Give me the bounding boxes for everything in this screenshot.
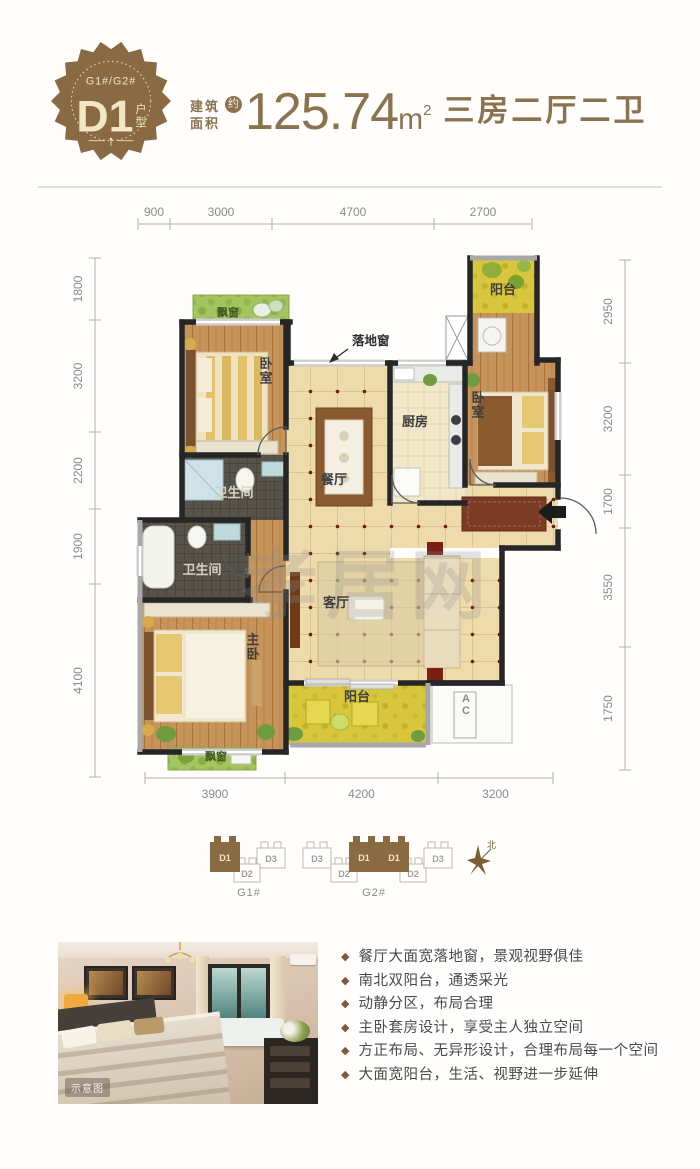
dimension-label: 1700 xyxy=(601,488,615,515)
site-cluster-G2: D3D2D2D3D1D1G2# xyxy=(303,836,452,899)
room-label-master-bedroom: 主卧 xyxy=(246,632,259,661)
floor-plan-svg: 孝居网飘窗卧室卫生间卫生间主卧飘窗餐厅厨房客厅阳台卧室阳台AC落地窗900300… xyxy=(0,195,700,930)
site-cluster-G1: D3D2D1G1# xyxy=(210,836,285,899)
site-cluster-name: G1# xyxy=(237,887,261,899)
dimension-label: 3200 xyxy=(601,405,615,432)
room-label-kitchen: 厨房 xyxy=(402,414,428,429)
room-label-bedroom-east: 卧室 xyxy=(471,390,484,419)
photo-ac-unit xyxy=(290,954,316,965)
feature-item: ◆南北双阳台，通透采光 xyxy=(341,973,693,990)
feature-text: 主卧套房设计，享受主人独立空间 xyxy=(358,1020,583,1037)
photo-picture-frame xyxy=(84,966,128,1000)
feature-list: ◆餐厅大面宽落地窗，景观视野俱佳◆南北双阳台，通透采光◆动静分区，布局合理◆主卧… xyxy=(341,949,693,1090)
feature-item: ◆主卧套房设计，享受主人独立空间 xyxy=(341,1020,693,1037)
dimension-label: 3200 xyxy=(482,787,509,801)
feature-item: ◆餐厅大面宽落地窗，景观视野俱佳 xyxy=(341,949,693,966)
feature-bullet-icon: ◆ xyxy=(341,973,349,990)
site-unit-label: D2 xyxy=(241,869,253,879)
unit-type-badge: G1#/G2# D1 户型 xyxy=(50,40,172,162)
dimension-label: 3200 xyxy=(71,362,85,389)
site-unit-label: D1 xyxy=(388,853,400,863)
dimension-label: 3900 xyxy=(202,787,229,801)
dimension-label: 4200 xyxy=(348,787,375,801)
compass-north-label: 北 xyxy=(487,840,496,850)
photo-flowers xyxy=(280,1020,310,1042)
dimension-label: 2200 xyxy=(71,457,85,484)
site-plan: D3D2D1G1#D3D2D2D3D1D1G2#北 xyxy=(210,836,496,899)
dimension-label: 2950 xyxy=(601,298,615,325)
photo-dresser xyxy=(264,1038,318,1104)
watermark-text: 孝居网 xyxy=(242,544,494,629)
dimension-label: 2700 xyxy=(470,205,497,219)
feature-text: 餐厅大面宽落地窗，景观视野俱佳 xyxy=(358,949,583,966)
feature-bullet-icon: ◆ xyxy=(341,949,349,966)
site-unit-label: D2 xyxy=(338,869,350,879)
feature-item: ◆动静分区，布局合理 xyxy=(341,996,693,1013)
compass-icon: 北 xyxy=(467,840,496,875)
area-label: 建筑 面积 xyxy=(190,98,220,132)
badge-building-range: G1#/G2# xyxy=(86,76,136,88)
site-unit-label: D3 xyxy=(311,854,323,864)
dimension-label: 1800 xyxy=(71,275,85,302)
site-unit-label: D1 xyxy=(219,853,231,863)
dimension-label: 4700 xyxy=(340,205,367,219)
dimension-label: 1900 xyxy=(71,533,85,560)
badge-unit-suffix: 户型 xyxy=(135,102,146,129)
site-unit-label: D3 xyxy=(265,854,277,864)
photo-pillow xyxy=(133,1016,165,1035)
feature-bullet-icon: ◆ xyxy=(341,1067,349,1084)
feature-item: ◆大面宽阳台，生活、视野进一步延伸 xyxy=(341,1067,693,1084)
dimension-label: 1750 xyxy=(601,695,615,722)
header-divider xyxy=(38,186,662,188)
dimension-label: 900 xyxy=(144,205,164,219)
sample-photo: 示意图 xyxy=(58,942,318,1104)
room-label-dining-room: 餐厅 xyxy=(320,472,347,487)
approx-badge: 约 xyxy=(225,96,242,113)
room-label-balcony-south: 阳台 xyxy=(344,689,370,704)
dimension-label: 4100 xyxy=(71,667,85,694)
dimension-label: 3000 xyxy=(208,205,235,219)
feature-text: 动静分区，布局合理 xyxy=(358,996,493,1013)
svg-text:落地窗: 落地窗 xyxy=(352,333,390,348)
layout-description: 三房二厅二卫 xyxy=(443,86,647,136)
window-note: 落地窗 xyxy=(329,333,390,363)
feature-bullet-icon: ◆ xyxy=(341,996,349,1013)
photo-caption: 示意图 xyxy=(65,1078,110,1097)
header: 建筑 面积 约 125.74 m2 三房二厅二卫 xyxy=(190,86,647,145)
feature-item: ◆方正布局、无异形设计，合理布局每一个空间 xyxy=(341,1043,693,1060)
area-value: 125.74 xyxy=(245,86,398,138)
page-root: G1#/G2# D1 户型 建筑 面积 约 125.74 m2 三房二厅二卫 孝… xyxy=(0,0,700,1169)
room-label-bedroom-north: 卧室 xyxy=(259,356,272,385)
feature-bullet-icon: ◆ xyxy=(341,1043,349,1060)
photo-chandelier xyxy=(162,942,198,972)
room-label-bay-window-north: 飘窗 xyxy=(217,305,239,319)
dimension-label: 3550 xyxy=(601,574,615,601)
site-cluster-name: G2# xyxy=(362,887,386,899)
room-label-bay-window-south: 飘窗 xyxy=(205,749,227,763)
feature-text: 方正布局、无异形设计，合理布局每一个空间 xyxy=(358,1043,658,1060)
site-unit-label: D1 xyxy=(358,853,370,863)
room-label-balcony-north: 阳台 xyxy=(490,282,516,297)
badge-unit-code: D1 xyxy=(76,93,133,142)
room-label-ac-platform: AC xyxy=(462,693,470,717)
room-label-living-room: 客厅 xyxy=(323,595,349,610)
room-label-bathroom-ensuite: 卫生间 xyxy=(182,562,221,577)
feature-text: 南北双阳台，通透采光 xyxy=(358,973,508,990)
room-label-bathroom-main: 卫生间 xyxy=(214,485,253,500)
feature-text: 大面宽阳台，生活、视野进一步延伸 xyxy=(358,1067,598,1084)
site-unit-label: D3 xyxy=(432,854,444,864)
area-unit: m2 xyxy=(398,86,431,145)
feature-bullet-icon: ◆ xyxy=(341,1020,349,1037)
